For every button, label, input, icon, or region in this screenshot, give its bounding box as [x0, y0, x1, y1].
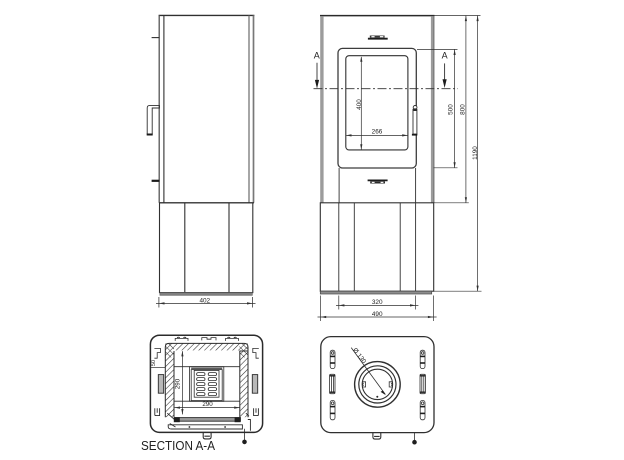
svg-text:400: 400	[356, 99, 363, 110]
svg-text:500: 500	[447, 104, 454, 115]
svg-text:320: 320	[372, 299, 383, 306]
svg-text:290: 290	[175, 378, 182, 389]
svg-text:50: 50	[151, 360, 157, 366]
svg-text:266: 266	[372, 128, 383, 135]
svg-text:800: 800	[459, 104, 466, 115]
svg-text:SECTION A-A: SECTION A-A	[141, 438, 215, 453]
svg-text:1190: 1190	[472, 146, 479, 160]
svg-text:490: 490	[372, 311, 383, 318]
svg-text:A: A	[314, 50, 320, 60]
svg-text:A: A	[442, 51, 448, 61]
svg-text:290: 290	[202, 401, 213, 408]
svg-text:402: 402	[199, 298, 210, 305]
